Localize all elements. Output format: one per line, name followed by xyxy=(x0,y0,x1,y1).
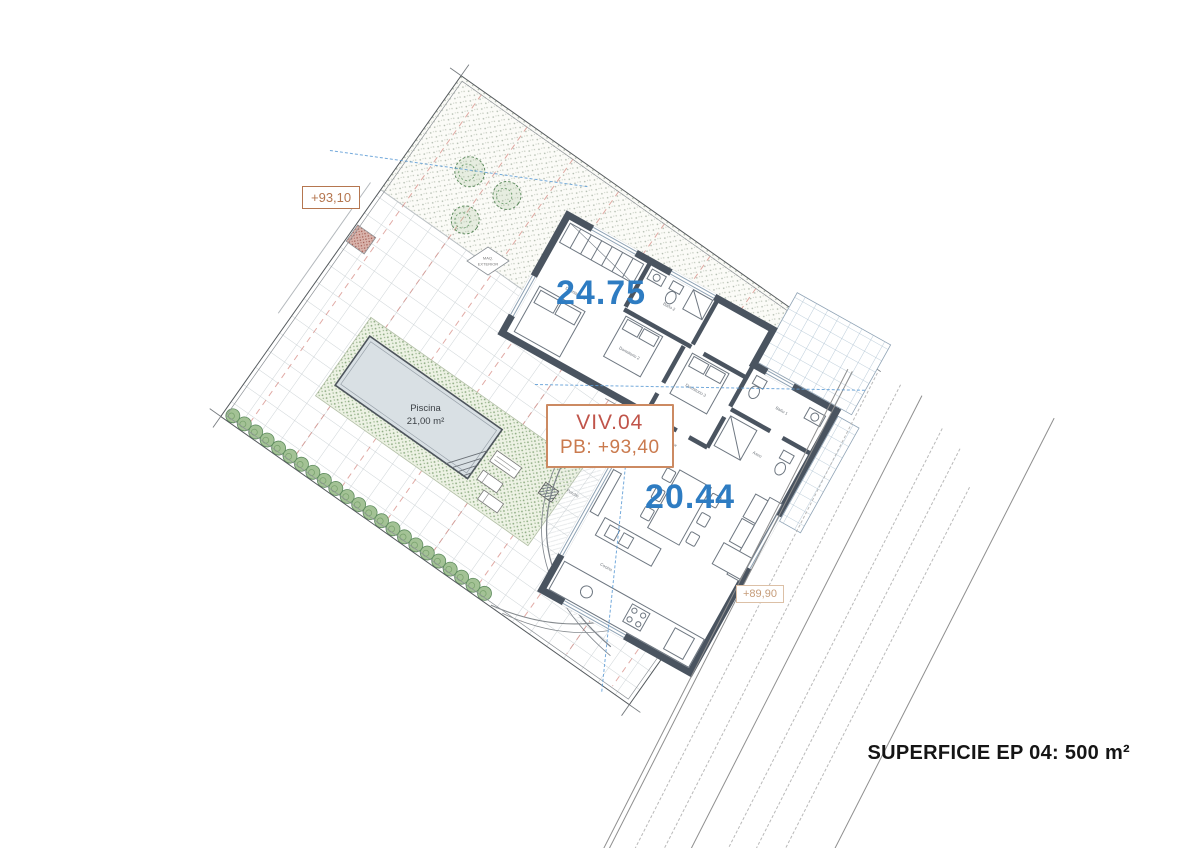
pool-label: Piscina 21,00 m² xyxy=(383,403,468,429)
equipment-diamond-label: MAQ. EXTERIOR xyxy=(466,246,510,276)
unit-label-box: VIV.04 PB: +93,40 xyxy=(546,404,674,468)
unit-name: VIV.04 xyxy=(560,410,660,436)
area-label-bedroom-wing: 24.75 xyxy=(556,274,646,313)
equipment-label-line2: EXTERIOR xyxy=(478,262,499,267)
equipment-label-line1: MAQ. xyxy=(483,256,493,261)
pool-name: Piscina xyxy=(383,403,468,416)
level-label-left: +93,10 xyxy=(302,186,360,209)
unit-level: PB: +93,40 xyxy=(560,436,660,460)
pool-area: 21,00 m² xyxy=(383,416,468,429)
site-plan-sheet: Dormitorio 1 Dormitorio 2 Dormitorio 3 B… xyxy=(0,0,1200,848)
level-label-right: +89,90 xyxy=(736,585,784,603)
area-label-living-wing: 20.44 xyxy=(645,478,735,517)
sheet-area-title: SUPERFICIE EP 04: 500 m² xyxy=(868,742,1130,765)
